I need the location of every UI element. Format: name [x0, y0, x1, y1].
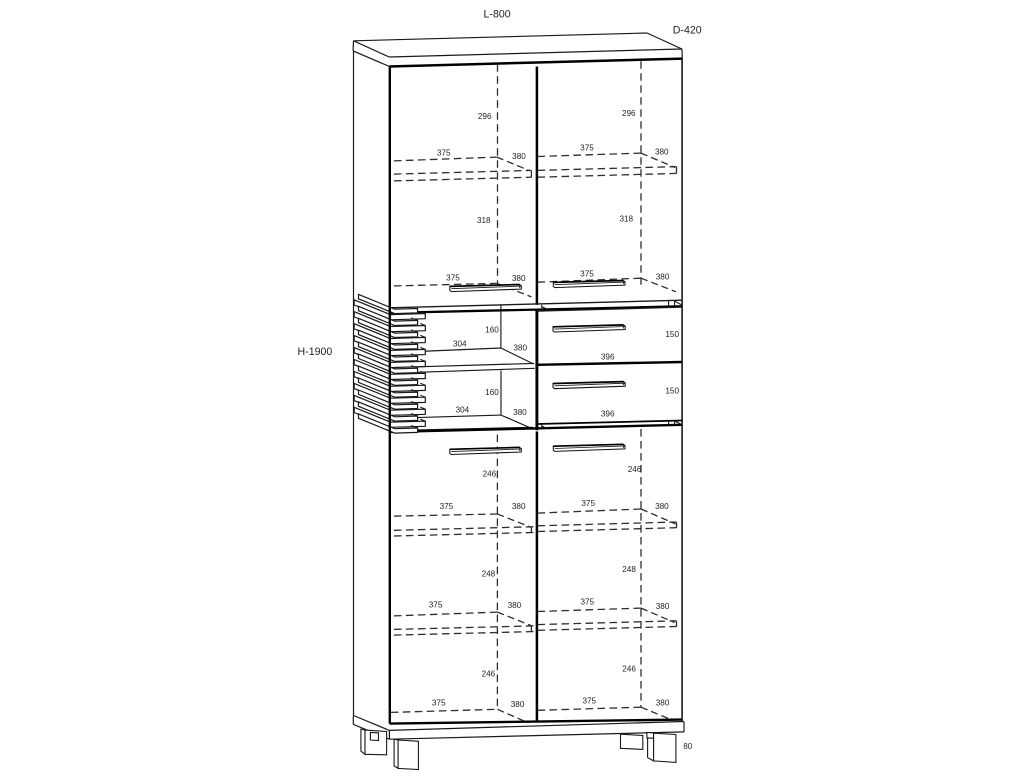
svg-text:380: 380: [656, 602, 670, 611]
svg-text:380: 380: [655, 148, 669, 157]
svg-text:380: 380: [508, 601, 522, 610]
svg-text:380: 380: [512, 274, 526, 283]
svg-text:380: 380: [511, 700, 525, 709]
svg-text:246: 246: [483, 470, 497, 479]
svg-text:246: 246: [628, 465, 642, 474]
svg-text:375: 375: [580, 597, 594, 606]
svg-text:248: 248: [482, 570, 496, 579]
svg-text:375: 375: [432, 699, 446, 708]
svg-text:160: 160: [485, 388, 499, 397]
svg-text:375: 375: [581, 499, 595, 508]
svg-text:D-420: D-420: [673, 25, 702, 37]
svg-text:375: 375: [429, 601, 443, 610]
svg-text:380: 380: [656, 699, 670, 708]
svg-text:375: 375: [580, 270, 594, 279]
svg-text:246: 246: [482, 669, 496, 678]
svg-text:304: 304: [456, 406, 470, 415]
svg-text:L-800: L-800: [484, 9, 511, 21]
svg-text:380: 380: [513, 408, 527, 417]
svg-text:375: 375: [580, 144, 594, 153]
svg-text:150: 150: [665, 330, 679, 339]
svg-text:380: 380: [656, 273, 670, 282]
svg-text:318: 318: [477, 216, 491, 225]
svg-text:296: 296: [478, 112, 492, 121]
svg-text:H-1900: H-1900: [298, 346, 333, 358]
svg-text:80: 80: [683, 742, 693, 751]
svg-text:380: 380: [655, 502, 669, 511]
svg-text:380: 380: [512, 152, 526, 161]
svg-text:375: 375: [582, 697, 596, 706]
svg-text:375: 375: [437, 149, 451, 158]
svg-text:296: 296: [622, 109, 636, 118]
svg-text:396: 396: [601, 409, 615, 418]
svg-text:396: 396: [601, 353, 615, 362]
svg-text:318: 318: [619, 215, 633, 224]
svg-text:304: 304: [453, 339, 467, 348]
svg-text:160: 160: [485, 325, 499, 334]
svg-text:375: 375: [446, 274, 460, 283]
svg-text:375: 375: [440, 502, 454, 511]
svg-text:380: 380: [513, 344, 527, 353]
svg-text:150: 150: [665, 386, 679, 395]
svg-text:380: 380: [512, 502, 526, 511]
svg-text:246: 246: [622, 665, 636, 674]
svg-text:248: 248: [622, 565, 636, 574]
